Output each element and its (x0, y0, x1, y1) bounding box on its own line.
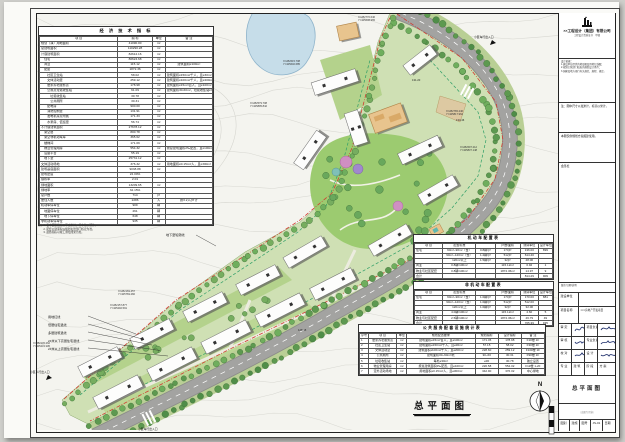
drawing-name: 总平面图 (559, 376, 615, 404)
designer-signature (598, 350, 615, 362)
spot-elevation: 134.46 (456, 119, 464, 122)
setback-callout: 低层住宅退线 (48, 322, 67, 327)
approved-signature (572, 324, 585, 336)
designer-label: 设 计 (585, 350, 598, 362)
title-block: ××工程设计（集团）有限公司 工程设计资质证书 甲级 设计依据： 1.建设单位提… (558, 13, 615, 431)
setback-callout: 24米以上高层住宅退线 (48, 346, 79, 351)
nonmotor-parking-table: 非机动车配置表 项 目配置标准户数/面积测算车位设计车位住宅60m²~90m²（… (413, 281, 554, 327)
setback-callout: 用地红线 (48, 314, 60, 319)
certificate-text: 工程设计资质证书 甲级 (561, 33, 613, 37)
usage-note: 本图仅供规划方案报建使用。 (559, 133, 615, 163)
table-cell: m² (397, 369, 407, 374)
economic-indicators-grid: 项 目指 标单位备 注规划（净）用地面积41090.00m²总建筑面积11029… (39, 36, 213, 225)
drawing-no-value: JS-01 (591, 420, 603, 431)
setback-callout: 24米以下高层住宅退线 (48, 338, 79, 343)
coordinate-label: X=282770.646Y=425638.965 (358, 16, 375, 22)
coordinate-label: X=282697.212Y=425837.148 (460, 146, 477, 152)
coordinate-label: X=282157.877Y=425292.591 (110, 304, 127, 310)
table-cell: 用地面积≥0.15m²/人，且≥300m² (407, 369, 475, 374)
drawing-type-value: 建施 (570, 420, 580, 431)
proofread-signature (572, 350, 585, 362)
discipline-label: 专 业 (559, 363, 572, 375)
drawing-title: 总平面图 (413, 398, 471, 415)
table-title: 机动车配置表 (414, 235, 553, 243)
owner-label: 建设单位 (559, 293, 579, 306)
table-cell: 室外活动场地 (369, 369, 397, 374)
stage-value: 方 案 (598, 363, 615, 375)
countersign-box: 会签栏 (559, 163, 615, 283)
project-value: ×××房地产开发项目 (579, 307, 615, 323)
nonmotor-parking-grid: 项 目配置标准户数/面积测算车位设计车位住宅60m²~90m²（含）1.0辆/户… (414, 290, 553, 327)
entrance-label: 小区车行出入口 (474, 35, 494, 39)
project-label: 项目名称 (559, 307, 579, 323)
stamp-area: （出图专用章） (559, 404, 615, 420)
owner-value (579, 293, 615, 306)
coordinate-label: X=282579.708Y=425895.842 (250, 102, 267, 108)
units-note: 注：图中尺寸以毫米计，标高以米计。 (559, 103, 615, 133)
basement-outline-callout: 地下室轮廓线 (166, 232, 185, 237)
table-cell: 7 (360, 369, 369, 374)
table-cell: 342.90 (475, 369, 498, 374)
coordinate-label: X=282169.457Y=425769.282 (118, 290, 135, 296)
design-basis-line: 3.国家及地方现行有关规范、规程、规定。 (561, 70, 613, 73)
table-row: 合计814.29909 (415, 274, 553, 279)
table-row: 7室外活动场地m²用地面积≥0.15m²/人，且≥300m²342.90376.… (360, 369, 545, 374)
table-cell: 814.29 (520, 274, 538, 279)
table-notes: 注：1. 表中面积指标以平方米计，停车位以辆计。 2. 配套公建面积以规划主管部… (38, 224, 218, 235)
coordinate-label: X=282615.708Y=425640.685 (283, 60, 300, 66)
table-title: 经 济 技 术 指 标 (39, 27, 213, 36)
table-cell: 合计 (415, 274, 443, 279)
proofread-label: 校 对 (559, 350, 572, 362)
coordinate-label: X=282765.246Y=425817.962 (446, 110, 463, 116)
table-cell: 909 (538, 274, 552, 279)
table-cell: 中心绿地 (521, 369, 544, 374)
date-label: 日期 (603, 420, 614, 431)
table-cell: 376.32 (498, 369, 521, 374)
table-title: 非机动车配置表 (414, 282, 553, 290)
spot-elevation: 131.20 (412, 79, 420, 82)
entrance-label: 小区人行出入口 (30, 370, 50, 374)
entrance-label: 小区车行出入口 (138, 427, 158, 431)
checked-signature (572, 337, 585, 349)
drawing-no-label: 图号 (580, 420, 591, 431)
graphic-scale-bar (548, 406, 556, 436)
setback-callout: 多层建筑退线 (48, 330, 67, 335)
motor-parking-grid: 项 目配置标准户数/面积测算车位设计车位住宅60m²~90m²（含）0.8辆/户… (414, 243, 553, 280)
spot-elevation: 128.35 (298, 329, 306, 332)
project-lead-signature (598, 324, 615, 336)
approved-label: 审 定 (559, 324, 572, 336)
revision-row: 版次/日期/说明 (559, 283, 615, 293)
table-cell (443, 274, 476, 279)
note-line: 3. 最终指标以竣工测绘成果为准。 (38, 231, 218, 235)
table-cell (476, 274, 495, 279)
discipline-lead-signature (598, 337, 615, 349)
economic-indicators-table: 经 济 技 术 指 标 项 目指 标单位备 注规划（净）用地面积41090.00… (38, 26, 214, 226)
public-facilities-table: 公共服务配套设施统计表 序号项 目单位规划配置要求规划指标设计指标备 注1居家养… (358, 324, 546, 376)
drawing-type-label: 图别 (559, 420, 570, 431)
discipline-value: 建 筑 (572, 363, 585, 375)
table-title: 公共服务配套设施统计表 (359, 325, 545, 333)
project-lead-label: 项目负责 (585, 324, 598, 336)
table-cell (495, 274, 520, 279)
drawing-sheet-stage: 经 济 技 术 指 标 项 目指 标单位备 注规划（净）用地面积41090.00… (0, 0, 625, 442)
checked-label: 审 核 (559, 337, 572, 349)
company-logo-icon (561, 14, 613, 29)
stage-label: 阶 段 (585, 363, 598, 375)
discipline-lead-label: 专业负责 (585, 337, 598, 349)
public-facilities-grid: 序号项 目单位规划配置要求规划指标设计指标备 注1居家养老服务点m²建筑面积≥1… (359, 333, 545, 375)
motor-parking-table: 机动车配置表 项 目配置标准户数/面积测算车位设计车位住宅60m²~90m²（含… (413, 234, 554, 280)
